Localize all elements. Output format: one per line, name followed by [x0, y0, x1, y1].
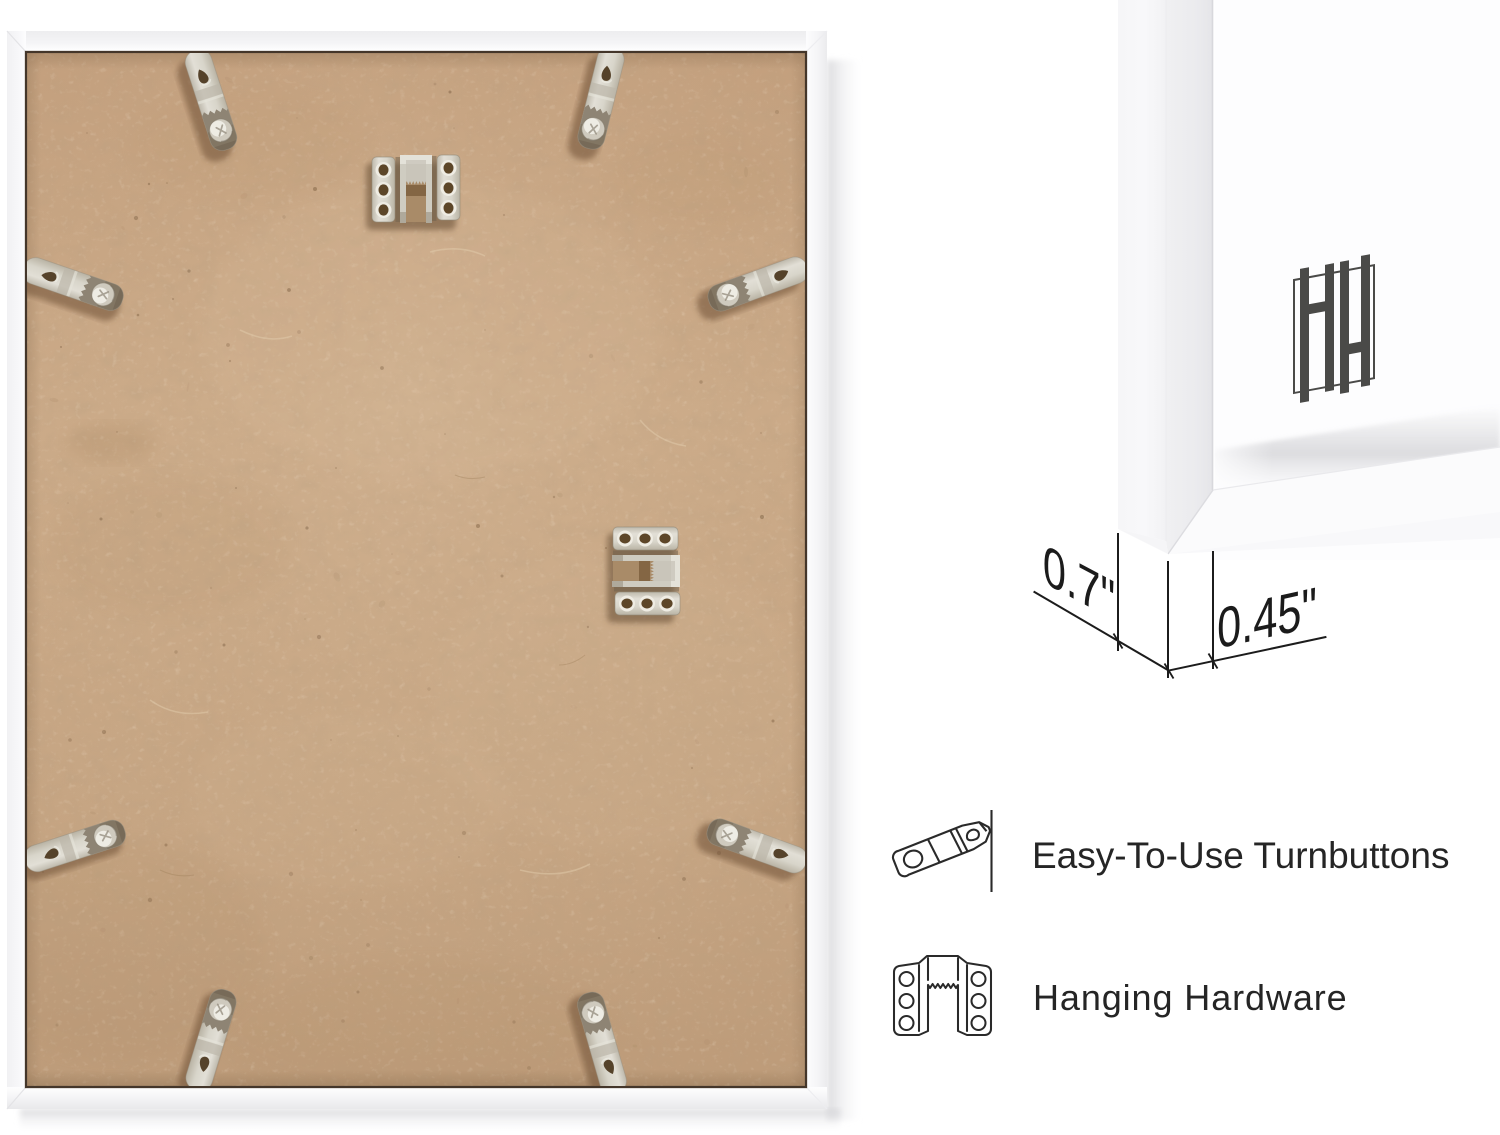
- svg-text:Hanging Hardware: Hanging Hardware: [1033, 977, 1348, 1018]
- svg-text:Easy-To-Use Turnbuttons: Easy-To-Use Turnbuttons: [1032, 835, 1449, 876]
